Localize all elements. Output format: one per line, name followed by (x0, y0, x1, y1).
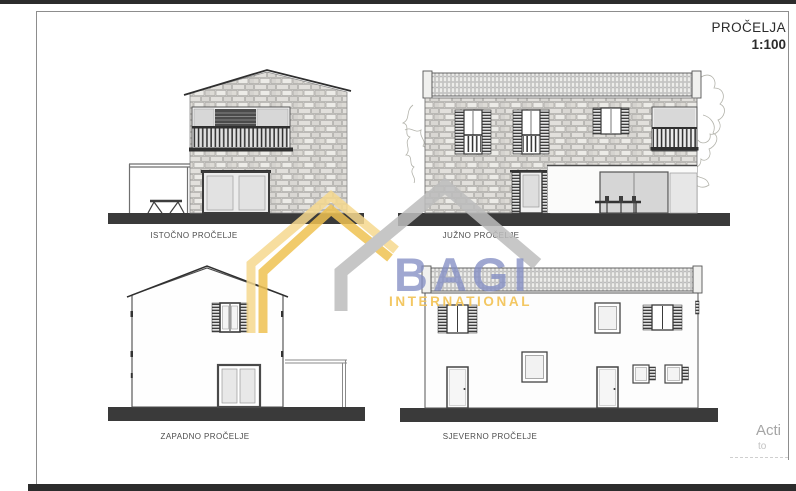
north-door-left (447, 367, 468, 408)
west-door (218, 365, 260, 407)
south-window-upper-3 (593, 108, 629, 134)
south-ground-line (398, 213, 730, 226)
sheet-frame-top (36, 11, 788, 12)
architectural-drawing-page: { "page": { "title": "PROČELJA", "scale"… (0, 0, 796, 491)
north-window-upper-right (643, 305, 682, 330)
east-ground-line (108, 213, 364, 224)
south-window-upper-2 (513, 110, 549, 154)
west-building-wall (127, 266, 288, 407)
south-door-shuttered (510, 170, 552, 213)
west-ground-line (108, 407, 365, 421)
window-top-bar (0, 0, 796, 4)
north-window-upper-middle (595, 303, 620, 333)
north-window-ground-middle (522, 352, 547, 382)
north-door-right (597, 367, 618, 408)
south-terrace (547, 166, 697, 214)
os-activation-underline (730, 457, 788, 458)
east-facade-drawing (100, 60, 370, 228)
west-facade-label: ZAPADNO PROČELJE (120, 432, 290, 441)
south-recessed-balcony (651, 107, 699, 151)
north-facade-label: SJEVERNO PROČELJE (405, 432, 575, 441)
bagi-brand-subtitle: INTERNATIONAL (389, 294, 532, 309)
west-window-shuttered (212, 303, 248, 332)
south-window-upper-1 (455, 110, 491, 154)
south-facade-label: JUŽNO PROČELJE (396, 231, 566, 240)
os-activation-text: Acti (756, 422, 781, 439)
east-pergola (129, 164, 190, 213)
page-title: PROČELJA (712, 20, 786, 37)
sheet-frame-left (36, 11, 37, 491)
title-block: PROČELJA 1:100 (712, 20, 786, 54)
south-facade-drawing (395, 60, 735, 230)
east-loggia-balcony (189, 107, 293, 152)
south-roof-tile-band (423, 71, 701, 98)
os-activation-subtext: to (758, 441, 766, 452)
north-window-upper-left (438, 305, 477, 333)
west-pergola (285, 360, 347, 407)
window-bottom-bar (28, 484, 796, 491)
east-sliding-door (201, 170, 271, 213)
east-table-and-chairs (148, 201, 184, 213)
west-facade-drawing (100, 255, 380, 425)
east-facade-label: ISTOČNO PROČELJE (109, 231, 279, 240)
north-ground-line (400, 408, 718, 422)
drawing-scale: 1:100 (712, 37, 786, 54)
north-edge-vent-mark (696, 301, 700, 314)
bagi-brand-wordmark: BAGI (394, 251, 532, 298)
sheet-frame-right (788, 11, 789, 460)
